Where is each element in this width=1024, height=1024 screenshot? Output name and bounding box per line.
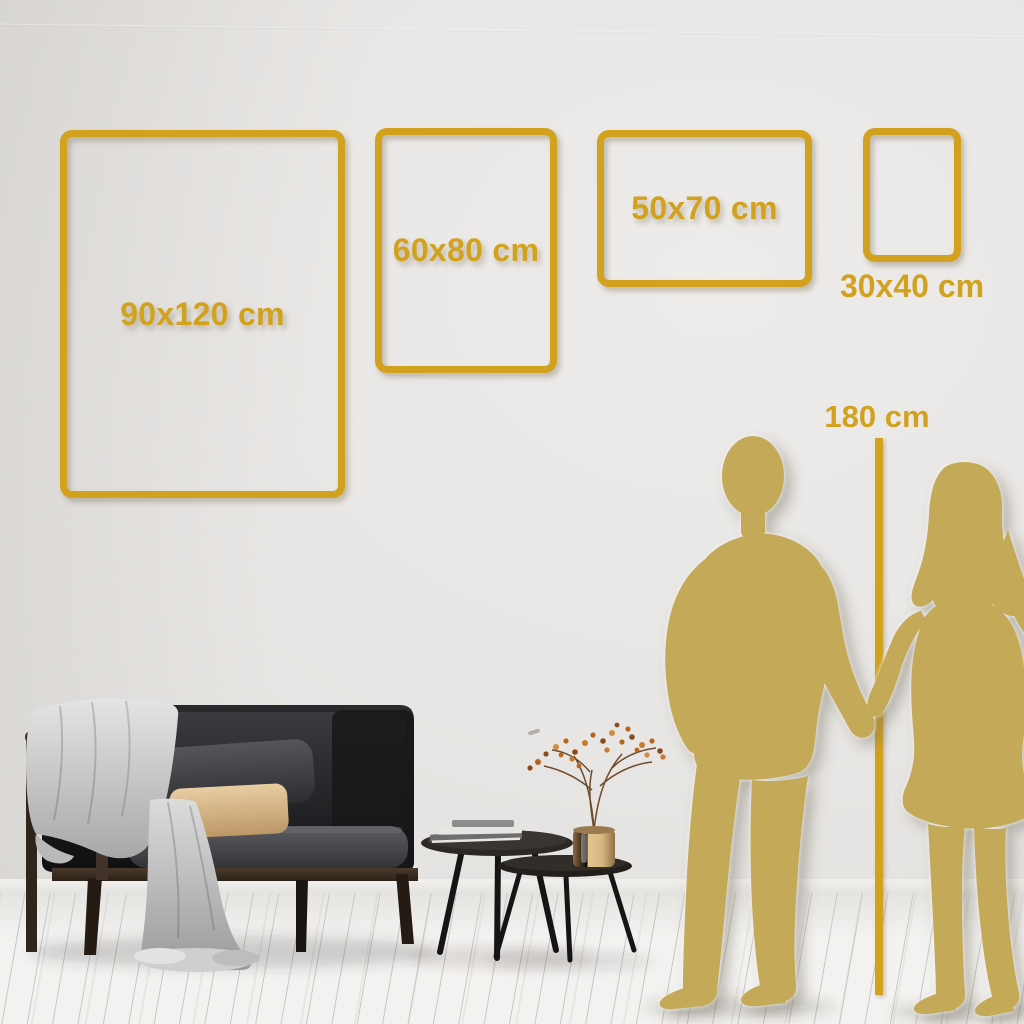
- frame-size-label: 30x40 cm: [840, 268, 984, 305]
- frame-60x80: 60x80 cm: [375, 128, 557, 373]
- baseboard: [0, 879, 1024, 893]
- size-guide-scene: 90x120 cm 60x80 cm 50x70 cm 30x40 cm 180…: [0, 0, 1024, 1024]
- frame-50x70: 50x70 cm: [597, 130, 812, 287]
- frame-size-label: 90x120 cm: [120, 296, 285, 333]
- height-marker-label: 180 cm: [824, 399, 929, 435]
- frame-size-label: 60x80 cm: [393, 232, 540, 269]
- height-marker-line: [875, 438, 883, 995]
- floor: [0, 893, 1024, 1024]
- frame-size-label: 50x70 cm: [631, 190, 778, 227]
- frame-90x120: 90x120 cm: [60, 130, 345, 498]
- frame-30x40: [863, 128, 961, 262]
